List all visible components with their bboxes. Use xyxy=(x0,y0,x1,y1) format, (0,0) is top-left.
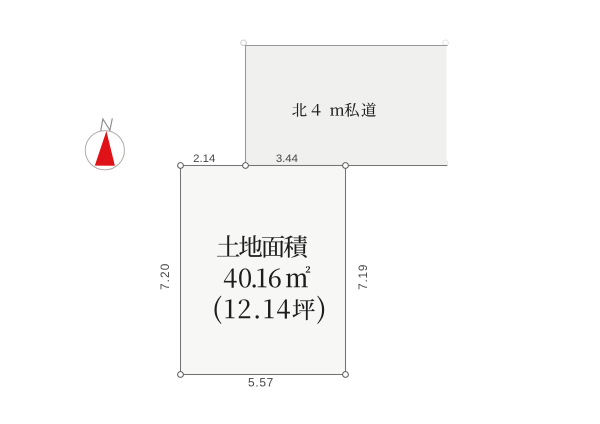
svg-text:7.20: 7.20 xyxy=(158,263,172,290)
svg-text:3.44: 3.44 xyxy=(276,153,298,165)
svg-text:2.14: 2.14 xyxy=(193,153,215,165)
svg-text:7.19: 7.19 xyxy=(356,264,370,290)
svg-text:5.57: 5.57 xyxy=(248,376,274,390)
